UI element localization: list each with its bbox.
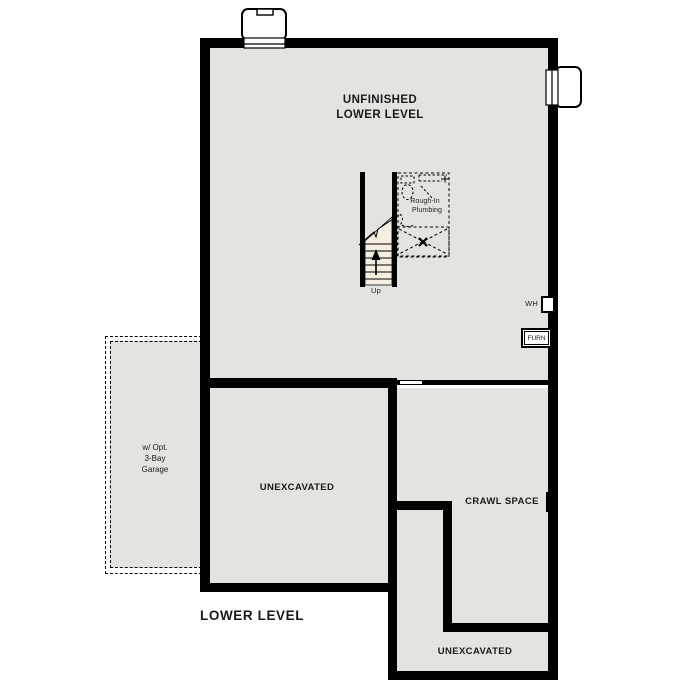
wall-crawl-bottom — [443, 623, 558, 632]
garage-option-label-line2: 3-Bay — [115, 453, 195, 464]
plumbing-label-line1: Rough-In — [398, 198, 452, 205]
wall-right — [548, 38, 558, 680]
furnace-box: FURN — [521, 328, 552, 348]
main-room-label-line1: UNFINISHED — [280, 93, 480, 108]
water-heater-label: WH — [512, 299, 538, 308]
wall-left — [200, 38, 210, 592]
window-icon — [546, 70, 558, 105]
wall-gap-strip — [397, 385, 548, 388]
garage-option-label: w/ Opt. 3-Bay Garage — [115, 442, 195, 475]
unexcavated-left-label: UNEXCAVATED — [217, 482, 377, 493]
water-heater-box — [541, 296, 555, 313]
plumbing-boundary — [398, 173, 449, 257]
unexcavated-bottom-label: UNEXCAVATED — [400, 646, 550, 657]
wall-unexcavated-bottom — [200, 583, 397, 592]
stair-wall-left — [360, 172, 365, 287]
wall-divider-left — [200, 378, 397, 388]
main-room-label: UNFINISHED LOWER LEVEL — [280, 93, 480, 123]
window-well-top — [240, 7, 290, 52]
wall-opening-marker — [400, 381, 422, 384]
plumbing-label-line2: Plumbing — [400, 207, 454, 214]
wall-bottom — [388, 671, 558, 680]
window-icon — [244, 38, 285, 48]
window-well-right — [543, 64, 585, 112]
furnace-box-inner: FURN — [524, 331, 549, 345]
furnace-label: FURN — [527, 335, 545, 342]
wall-crawl-vertical — [443, 501, 452, 632]
shower-rough-in-icon — [397, 227, 449, 256]
wall-mid-vertical — [388, 385, 397, 680]
well-ladder-icon — [257, 9, 273, 15]
garage-option-label-line1: w/ Opt. — [115, 442, 195, 453]
crawl-space-label: CRAWL SPACE — [437, 496, 567, 507]
floor-plan: { "plan": { "title": "LOWER LEVEL", "mai… — [0, 0, 687, 687]
sink-icon — [419, 175, 449, 199]
stairs-up-label: Up — [365, 286, 387, 295]
toilet-icon — [401, 176, 414, 200]
tub-rough-in-icon — [400, 214, 414, 227]
garage-option-label-line3: Garage — [115, 464, 195, 475]
rough-in-plumbing-diagram — [393, 168, 453, 263]
window-well-icon — [555, 67, 581, 107]
plan-title: LOWER LEVEL — [200, 608, 304, 623]
main-room-label-line2: LOWER LEVEL — [280, 108, 480, 123]
